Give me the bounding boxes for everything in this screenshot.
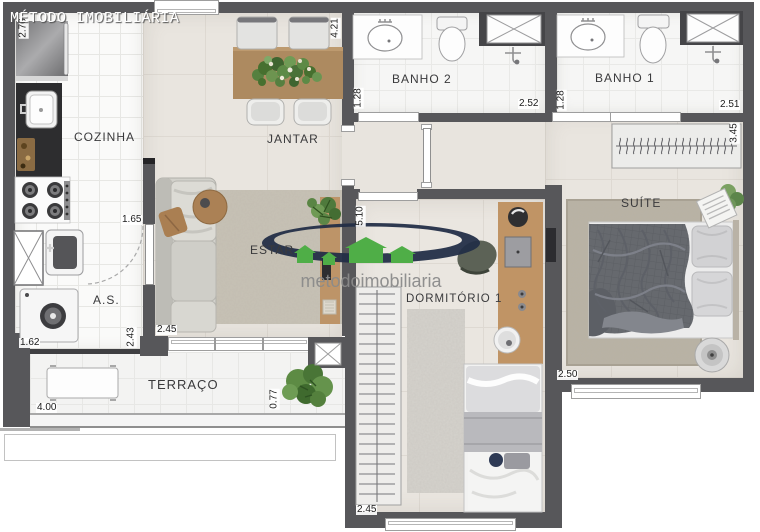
- svg-text:metodoimobiliaria: metodoimobiliaria: [300, 271, 442, 291]
